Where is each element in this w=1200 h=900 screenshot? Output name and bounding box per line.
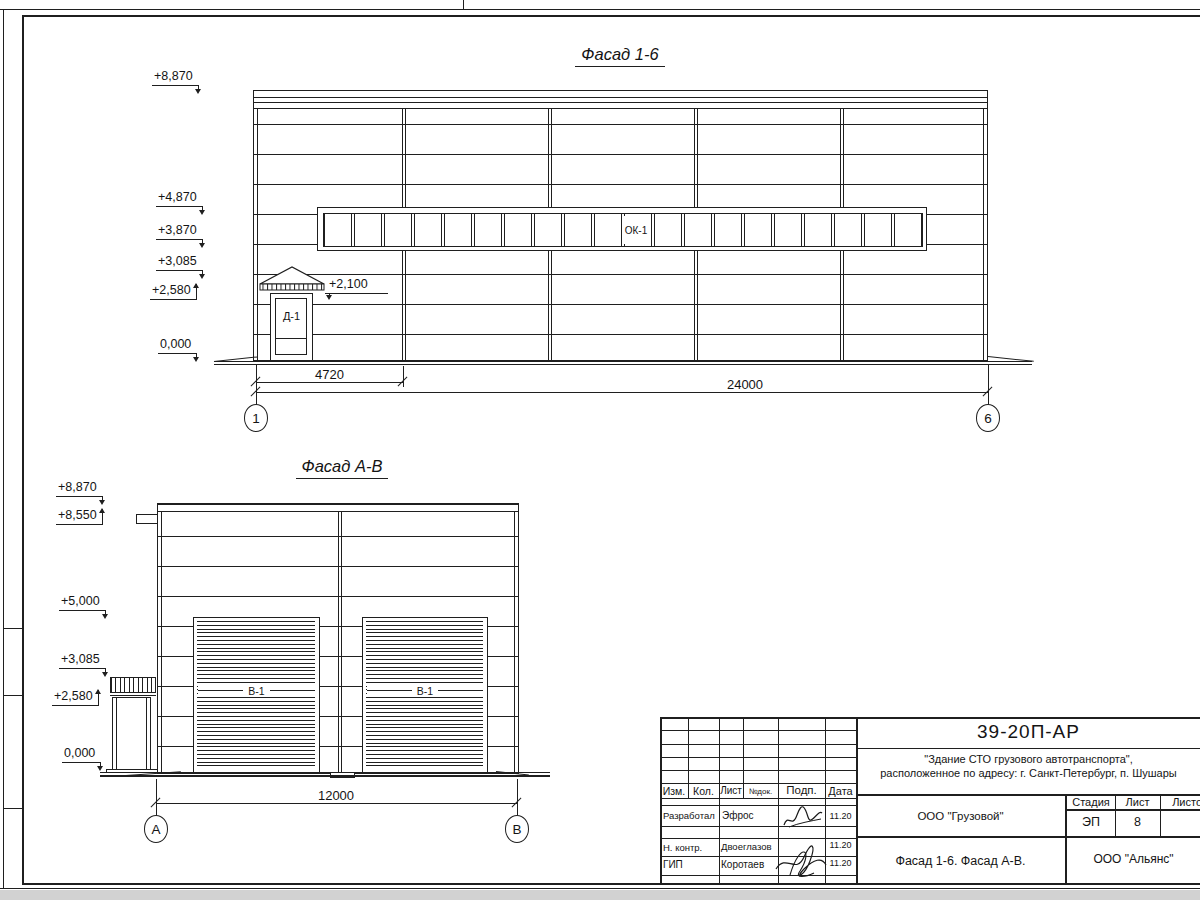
axis-bubble-6: 6 [976, 404, 1000, 432]
column-header-izm: Изм. [660, 785, 688, 797]
axis-bubble-b: В [505, 815, 529, 843]
elevation-mark: +3,870 [156, 224, 202, 240]
sign-date: 11.20 [825, 811, 856, 821]
parapet-line [254, 108, 987, 109]
titleblock-border [660, 717, 1200, 719]
column-header-ndok: №док. [743, 787, 778, 796]
side-canopy [110, 677, 156, 693]
elevation-mark: +4,870 [156, 191, 202, 207]
frame-bottom [22, 883, 1200, 885]
dimension-line [256, 382, 403, 383]
corner-edge-line [983, 108, 984, 360]
ground-line [214, 364, 1032, 365]
extension-line [517, 779, 518, 816]
titleblock-border [856, 836, 1200, 838]
column-header-podp: Подп. [778, 784, 825, 796]
extension-line [403, 366, 404, 387]
corner-edge-line [257, 108, 258, 360]
gate-label: В-1 [243, 685, 269, 697]
elevation-mark: +8,870 [152, 70, 198, 86]
dimension-line [256, 392, 988, 393]
column-header-list: Лист [719, 785, 743, 796]
gate-label-strip: В-1 [198, 684, 315, 697]
titleblock-line [1065, 809, 1200, 811]
panel-joint-line [254, 274, 987, 275]
corner-edge-line [514, 511, 515, 773]
elevation-mark: +3,085 [156, 255, 202, 271]
document-number: 39-20П-АР [857, 721, 1200, 743]
project-name-line1: "Здание СТО грузового автотранспорта", [857, 753, 1200, 765]
dimension-text: 4720 [256, 367, 403, 382]
column-header-kol: Кол. [688, 785, 719, 797]
gate-label: В-1 [412, 685, 438, 697]
sheet-edge-bottom [0, 888, 1200, 889]
elevation-mark: +8,550 [56, 509, 102, 525]
titleblock-line [660, 805, 856, 806]
project-name-line2: расположенное по адресу: г. Санкт-Петерб… [857, 767, 1200, 779]
elevation-mark: +2,100 [325, 278, 388, 294]
frame-top [22, 15, 1200, 17]
titleblock-border [660, 717, 662, 885]
panel-joint-line [254, 124, 987, 125]
elevation-mark: +5,000 [59, 595, 105, 611]
panel-joint-line [254, 184, 987, 185]
signer-name: Коротаев [721, 859, 764, 870]
drawing-sheet: Фасад 1-6 ОК-1 Д-1 +8,870 [0, 0, 1200, 900]
outside-margin [0, 890, 1200, 900]
panel-joint-line [254, 304, 987, 305]
elevation-mark: 0,000 [158, 338, 196, 354]
ground-line [100, 775, 550, 777]
canopy-edge-line [110, 695, 156, 696]
side-door [112, 697, 151, 773]
roof-pipe [136, 514, 158, 524]
facade-a-b-title: Фасад А-В [272, 457, 412, 479]
titleblock-line [660, 798, 856, 799]
titleblock-line [660, 744, 856, 745]
sheets-total-header: Листов [1160, 796, 1200, 808]
signature-scribble [770, 835, 834, 881]
panel-joint-line [254, 154, 987, 155]
parapet-line [254, 102, 987, 103]
signer-role: ГИП [663, 859, 683, 870]
titleblock-line [660, 730, 856, 731]
sheet-number-header: Лист [1115, 796, 1160, 808]
customer-org: ООО "Грузовой" [856, 810, 1065, 822]
dimension-text: 24000 [620, 377, 870, 392]
titleblock-line [660, 770, 856, 771]
titleblock-line [719, 718, 720, 884]
axis-bubble-1: 1 [244, 404, 268, 432]
titleblock-line [660, 757, 856, 758]
gate-label-strip: В-1 [367, 684, 483, 697]
frame-left [22, 15, 24, 885]
contractor-org: ООО "Альянс" [1067, 852, 1200, 866]
dimension-line [156, 803, 517, 804]
dimension-text: 12000 [216, 788, 456, 803]
window-panes [323, 213, 923, 247]
door-jamb-line [116, 698, 117, 772]
signature-scribble [781, 803, 825, 831]
panel-joint-line [254, 334, 987, 335]
door-label: Д-1 [271, 310, 312, 322]
facade-1-6-title: Фасад 1-6 [550, 45, 690, 67]
window-band-ok1 [317, 207, 927, 251]
ground-line [214, 361, 1032, 362]
corner-edge-line [161, 511, 162, 773]
sheet-edge-top [0, 9, 1200, 10]
stage-header: Стадия [1067, 796, 1115, 808]
column-line [338, 511, 342, 773]
sheet-title: Фасад 1-6. Фасад А-В. [856, 854, 1065, 868]
elevation-mark: 0,000 [62, 747, 100, 763]
door-leaf [275, 298, 307, 355]
signer-role: Н. контр. [663, 842, 702, 853]
column-header-data: Дата [825, 785, 856, 797]
sheet-number-value: 8 [1115, 815, 1160, 829]
elevation-mark: +2,580 [150, 284, 196, 300]
sheet-edge-left [3, 9, 4, 889]
parapet-line [254, 97, 987, 98]
door-jamb-line [146, 698, 147, 772]
door-divider-line [275, 338, 307, 339]
elevation-mark: +8,870 [56, 481, 102, 497]
margin-box-line [3, 628, 22, 629]
signer-role: Разработал [663, 810, 715, 821]
elevation-mark: +3,085 [59, 653, 105, 669]
extension-line [156, 779, 157, 816]
titleblock-line [660, 826, 856, 827]
signer-name: Двоеглазов [721, 841, 772, 852]
door-d1 [270, 293, 313, 361]
margin-box-line [3, 695, 22, 696]
margin-box-line [3, 808, 22, 809]
titleblock-line [660, 783, 856, 784]
extension-line [988, 364, 989, 405]
stage-value: ЭП [1067, 815, 1115, 829]
axis-bubble-a: А [144, 815, 168, 843]
door-canopy [258, 264, 326, 292]
window-band-label: ОК-1 [624, 216, 648, 244]
titleblock-line [856, 748, 1200, 749]
signer-name: Эфрос [722, 810, 754, 821]
fold-mark [463, 0, 464, 9]
elevation-mark: +2,580 [52, 690, 98, 706]
